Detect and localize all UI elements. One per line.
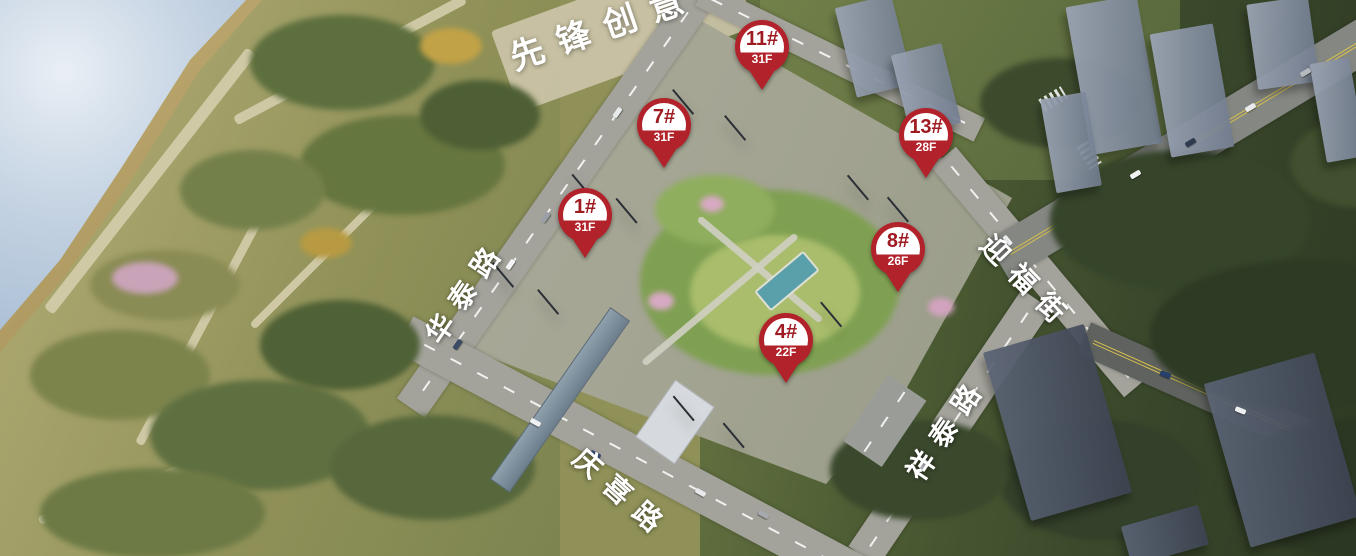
tree-cluster <box>420 80 540 150</box>
tree-cluster <box>250 15 435 110</box>
blossom-tree-cluster <box>112 262 178 294</box>
pin-tail-icon <box>913 158 939 178</box>
building-floors: 31F <box>563 220 607 234</box>
ghost-building <box>1246 0 1319 90</box>
pin-tail-icon <box>651 148 677 168</box>
building-floors: 31F <box>642 130 686 144</box>
building-number: 8# <box>876 229 920 253</box>
pin-tail-icon <box>773 363 799 383</box>
building-pin-11[interactable]: 11# 31F <box>735 20 789 94</box>
building-number: 1# <box>563 195 607 219</box>
pin-disc: 13# 28F <box>904 113 948 157</box>
autumn-tree-cluster <box>420 28 482 64</box>
pin-disc: 1# 31F <box>563 193 607 237</box>
building-number: 7# <box>642 105 686 129</box>
building-pin-8[interactable]: 8# 26F <box>871 222 925 296</box>
building-floors: 28F <box>904 140 948 154</box>
pin-disc: 7# 31F <box>642 103 686 147</box>
pin-tail-icon <box>885 272 911 292</box>
building-pin-7[interactable]: 7# 31F <box>637 98 691 172</box>
tree-cluster <box>180 150 325 230</box>
building-floors: 22F <box>764 345 808 359</box>
blossom-tree <box>928 298 954 316</box>
blossom-tree <box>648 292 674 310</box>
building-number: 11# <box>740 27 784 51</box>
tree-cluster <box>260 300 420 390</box>
building-floors: 26F <box>876 254 920 268</box>
building-number: 13# <box>904 115 948 139</box>
building-pin-1[interactable]: 1# 31F <box>558 188 612 262</box>
autumn-tree-cluster <box>300 228 352 258</box>
aerial-masterplan: 先锋创意 华泰路 迎福街 祥泰路 庆喜路 11# 31F 7# 31F 13# … <box>0 0 1356 556</box>
building-floors: 31F <box>740 52 784 66</box>
pin-disc: 4# 22F <box>764 318 808 362</box>
pin-tail-icon <box>572 238 598 258</box>
building-pin-13[interactable]: 13# 28F <box>899 108 953 182</box>
building-pin-4[interactable]: 4# 22F <box>759 313 813 387</box>
pin-disc: 8# 26F <box>876 227 920 271</box>
blossom-tree <box>700 196 724 212</box>
building-number: 4# <box>764 320 808 344</box>
pin-tail-icon <box>749 70 775 90</box>
pin-disc: 11# 31F <box>740 25 784 69</box>
tree-cluster <box>40 468 265 556</box>
